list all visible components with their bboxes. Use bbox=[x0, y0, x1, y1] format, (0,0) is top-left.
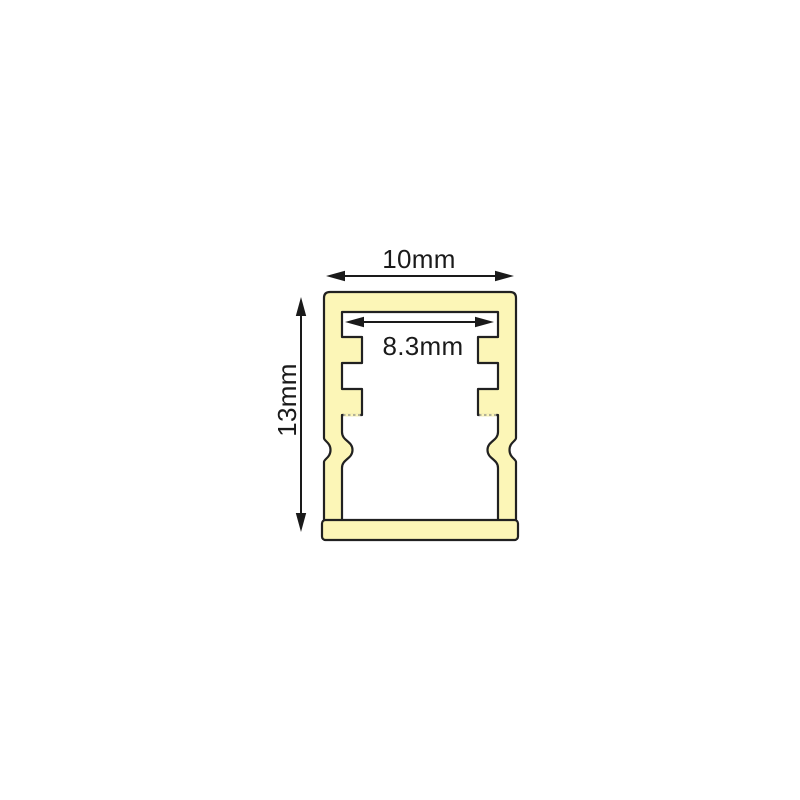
dimension-height: 13mm bbox=[272, 297, 306, 532]
outer-width-label: 10mm bbox=[382, 244, 455, 274]
arrowhead-right-icon bbox=[495, 271, 514, 281]
profile-base-plate bbox=[322, 520, 518, 540]
profile-shape bbox=[322, 292, 518, 540]
height-label: 13mm bbox=[272, 363, 302, 436]
arrowhead-left-icon bbox=[326, 271, 345, 281]
diagram-canvas: 10mm 8.3mm 13mm bbox=[0, 0, 800, 800]
arrowhead-left-icon bbox=[345, 317, 364, 327]
arrowhead-up-icon bbox=[296, 297, 306, 316]
arrowhead-right-icon bbox=[475, 317, 494, 327]
arrowhead-down-icon bbox=[296, 513, 306, 532]
inner-width-label: 8.3mm bbox=[383, 331, 464, 361]
profile-body bbox=[324, 292, 516, 521]
profile-cross-section-diagram: 10mm 8.3mm 13mm bbox=[0, 0, 800, 800]
dimension-outer-width: 10mm bbox=[326, 244, 514, 281]
dimension-inner-width: 8.3mm bbox=[345, 317, 494, 361]
